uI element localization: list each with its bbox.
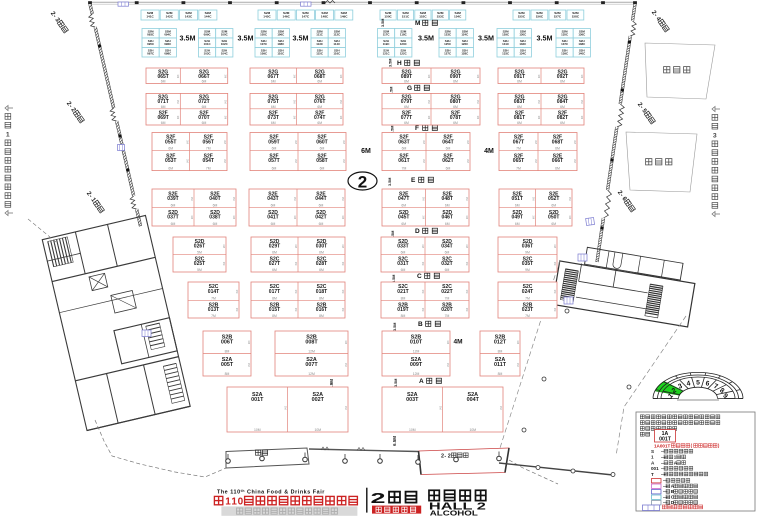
- svg-text:026T: 026T: [194, 243, 205, 249]
- svg-text:3.5M: 3.5M: [393, 323, 397, 331]
- svg-text:059T: 059T: [268, 139, 279, 145]
- svg-text:065T: 065T: [513, 158, 524, 164]
- svg-text:053T: 053T: [165, 158, 176, 164]
- svg-text:133C: 133C: [502, 51, 510, 55]
- svg-text:3M: 3M: [294, 244, 298, 248]
- svg-text:3M: 3M: [235, 308, 239, 312]
- svg-text:3M: 3M: [465, 308, 469, 312]
- svg-text:012T: 012T: [494, 340, 507, 346]
- svg-text:025T: 025T: [194, 261, 205, 267]
- svg-text:6M: 6M: [271, 121, 276, 125]
- svg-text:3M: 3M: [224, 100, 228, 104]
- svg-text:154C: 154C: [454, 14, 462, 18]
- svg-text:3M: 3M: [283, 406, 287, 410]
- svg-text:3M: 3M: [446, 340, 450, 344]
- svg-text:027T: 027T: [269, 261, 280, 267]
- svg-text:015T: 015T: [269, 307, 280, 313]
- svg-text:016T: 016T: [316, 307, 327, 313]
- svg-text:020T: 020T: [441, 307, 452, 313]
- svg-text:002T: 002T: [312, 397, 325, 403]
- svg-text:2: 2: [358, 173, 367, 192]
- svg-text:124C: 124C: [461, 32, 469, 36]
- svg-text:017T: 017T: [269, 289, 280, 295]
- svg-text:2: 2: [448, 453, 451, 459]
- svg-text:6M: 6M: [560, 80, 565, 84]
- svg-text:129C: 129C: [502, 32, 510, 36]
- svg-text:3M: 3M: [235, 290, 239, 294]
- svg-text:6M: 6M: [272, 250, 277, 254]
- svg-text:3M: 3M: [339, 100, 343, 104]
- svg-text:6M: 6M: [161, 80, 166, 84]
- svg-text:081T: 081T: [514, 115, 525, 121]
- svg-text:031T: 031T: [397, 261, 408, 267]
- svg-text:029T: 029T: [269, 243, 280, 249]
- svg-text:014T: 014T: [208, 289, 219, 295]
- svg-text:6M: 6M: [271, 222, 276, 226]
- svg-text:122C: 122C: [400, 51, 408, 55]
- svg-text:6M: 6M: [555, 147, 560, 151]
- svg-text:136C: 136C: [578, 32, 586, 36]
- svg-text:3M: 3M: [223, 159, 227, 163]
- svg-text:7M: 7M: [445, 314, 450, 318]
- svg-text:142C: 142C: [166, 14, 174, 18]
- svg-text:3.5M: 3.5M: [537, 34, 553, 43]
- svg-text:3M: 3M: [537, 100, 541, 104]
- svg-text:3M: 3M: [553, 262, 557, 266]
- svg-text:6M: 6M: [202, 80, 207, 84]
- svg-text:3M: 3M: [190, 215, 194, 219]
- svg-text:118C: 118C: [400, 32, 408, 36]
- svg-text:126C: 126C: [461, 42, 469, 46]
- svg-text:8M: 8M: [319, 314, 324, 318]
- svg-text:116C: 116C: [333, 51, 341, 55]
- svg-text:3M: 3M: [223, 140, 227, 144]
- svg-text:094C: 094C: [164, 32, 172, 36]
- svg-text:013T: 013T: [208, 307, 219, 313]
- svg-text:3.5M: 3.5M: [418, 34, 434, 43]
- svg-text:3M: 3M: [573, 140, 577, 144]
- svg-text:D: D: [415, 228, 420, 235]
- svg-text:095C: 095C: [147, 42, 155, 46]
- svg-text:3M: 3M: [438, 406, 442, 410]
- svg-text:3M: 3M: [344, 406, 348, 410]
- svg-text:6M: 6M: [453, 105, 458, 109]
- svg-text:093C: 093C: [147, 32, 155, 36]
- svg-text:068T: 068T: [552, 139, 563, 145]
- svg-text:1: 1: [651, 455, 654, 460]
- svg-text:A: A: [419, 378, 424, 385]
- svg-text:004T: 004T: [467, 397, 480, 403]
- svg-text:6M: 6M: [551, 204, 556, 208]
- svg-text:3.5M: 3.5M: [388, 178, 392, 186]
- svg-text:E: E: [411, 177, 416, 184]
- svg-text:3M: 3M: [534, 140, 538, 144]
- svg-text:150C: 150C: [384, 14, 392, 18]
- svg-text:6M: 6M: [515, 222, 520, 226]
- svg-text:125C: 125C: [444, 42, 452, 46]
- svg-text:3M: 3M: [190, 197, 194, 201]
- svg-text:3M: 3M: [224, 116, 228, 120]
- svg-text:010T: 010T: [410, 340, 423, 346]
- svg-text:066T: 066T: [552, 158, 563, 164]
- svg-text:139C: 139C: [561, 51, 569, 55]
- svg-text:6.5M: 6.5M: [392, 436, 397, 446]
- svg-text:019T: 019T: [397, 307, 408, 313]
- svg-text:3M: 3M: [176, 100, 180, 104]
- svg-text:6M: 6M: [320, 167, 325, 171]
- svg-text:3M: 3M: [421, 290, 425, 294]
- svg-text:023T: 023T: [522, 307, 533, 313]
- svg-text:B: B: [418, 321, 423, 328]
- svg-text:3M: 3M: [293, 197, 297, 201]
- svg-text:6M: 6M: [560, 105, 565, 109]
- svg-text:127C: 127C: [444, 51, 452, 55]
- svg-text:5M: 5M: [197, 268, 202, 272]
- svg-text:3M: 3M: [294, 262, 298, 266]
- svg-text:3.5M: 3.5M: [394, 379, 398, 387]
- svg-text:6M: 6M: [515, 204, 520, 208]
- svg-text:061T: 061T: [398, 158, 409, 164]
- svg-text:3M: 3M: [293, 215, 297, 219]
- svg-text:7M: 7M: [445, 296, 450, 300]
- svg-text:009T: 009T: [410, 362, 423, 368]
- svg-text:034T: 034T: [441, 243, 452, 249]
- svg-text:3M: 3M: [476, 100, 480, 104]
- svg-text:10M: 10M: [469, 428, 476, 432]
- svg-text:12M: 12M: [413, 372, 420, 376]
- svg-text:128C: 128C: [461, 51, 469, 55]
- svg-text:3M: 3M: [224, 75, 228, 79]
- svg-text:149C: 149C: [340, 14, 348, 18]
- svg-text:8M: 8M: [401, 314, 406, 318]
- svg-text:3M: 3M: [344, 363, 348, 367]
- svg-text:3M: 3M: [421, 197, 425, 201]
- svg-text:108C: 108C: [277, 42, 285, 46]
- svg-text:3M: 3M: [344, 340, 348, 344]
- svg-text:3M: 3M: [553, 290, 557, 294]
- svg-text:3M: 3M: [341, 262, 345, 266]
- svg-text:158C: 158C: [572, 14, 580, 18]
- svg-text:7M: 7M: [516, 167, 521, 171]
- svg-text:078T: 078T: [450, 115, 461, 121]
- svg-text:3M: 3M: [232, 197, 236, 201]
- svg-text:045T: 045T: [398, 215, 409, 221]
- svg-text:6M: 6M: [272, 268, 277, 272]
- svg-text:3.5M: 3.5M: [389, 59, 393, 67]
- svg-text:6M: 6M: [445, 250, 450, 254]
- svg-text:098C: 098C: [164, 51, 172, 55]
- svg-text:6M: 6M: [171, 204, 176, 208]
- svg-text:6M: 6M: [272, 147, 277, 151]
- svg-text:1: 1: [231, 496, 237, 507]
- svg-text:7M: 7M: [206, 167, 211, 171]
- svg-text:6M: 6M: [401, 250, 406, 254]
- svg-text:003T: 003T: [406, 397, 419, 403]
- svg-text:6M: 6M: [445, 204, 450, 208]
- svg-text:057T: 057T: [268, 158, 279, 164]
- svg-text:054T: 054T: [203, 158, 214, 164]
- svg-text:033T: 033T: [397, 243, 408, 249]
- svg-text:069T: 069T: [157, 115, 168, 121]
- svg-text:038T: 038T: [209, 215, 220, 221]
- svg-text:022T: 022T: [441, 289, 452, 295]
- svg-text:6M: 6M: [555, 167, 560, 171]
- svg-text:3M: 3M: [446, 363, 450, 367]
- svg-text:3M: 3M: [176, 116, 180, 120]
- svg-text:2: 2: [371, 491, 386, 507]
- svg-text:7M: 7M: [211, 296, 216, 300]
- svg-text:3M: 3M: [465, 197, 469, 201]
- svg-text:099C: 099C: [204, 32, 212, 36]
- svg-text:063T: 063T: [398, 139, 409, 145]
- svg-text:074T: 074T: [314, 115, 325, 121]
- svg-text:6M: 6M: [517, 121, 522, 125]
- svg-text:12M: 12M: [308, 372, 315, 376]
- svg-text:011T: 011T: [494, 362, 507, 368]
- svg-text:6M: 6M: [404, 105, 409, 109]
- svg-text:007T: 007T: [305, 362, 318, 368]
- svg-text:6M: 6M: [272, 167, 277, 171]
- svg-text:6M: 6M: [319, 204, 324, 208]
- svg-text:024T: 024T: [522, 289, 533, 295]
- svg-text:10M: 10M: [314, 428, 321, 432]
- svg-text:6M: 6M: [319, 268, 324, 272]
- svg-text:3M: 3M: [466, 140, 470, 144]
- svg-text:3M: 3M: [421, 308, 425, 312]
- svg-text:S: S: [651, 449, 654, 454]
- svg-text:1A001T: 1A001T: [654, 444, 671, 449]
- svg-text:131C: 131C: [502, 42, 510, 46]
- svg-text:6M: 6M: [446, 167, 451, 171]
- svg-text:3M: 3M: [247, 363, 251, 367]
- svg-text:157C: 157C: [554, 14, 562, 18]
- svg-text:H: H: [397, 60, 402, 67]
- svg-text:112C: 112C: [333, 32, 341, 36]
- svg-text:6M: 6M: [320, 147, 325, 151]
- svg-text:3M: 3M: [466, 159, 470, 163]
- svg-text:3M: 3M: [185, 159, 189, 163]
- svg-text:134C: 134C: [519, 51, 527, 55]
- svg-text:6M: 6M: [213, 204, 218, 208]
- svg-text:3M: 3M: [465, 290, 469, 294]
- svg-text:7M: 7M: [206, 147, 211, 151]
- svg-text:6M: 6M: [317, 121, 322, 125]
- svg-text:7M: 7M: [211, 314, 216, 318]
- svg-text:The 110th China Food & Drinks: The 110th China Food & Drinks Fair: [217, 489, 325, 496]
- svg-text:035T: 035T: [522, 261, 533, 267]
- svg-text:107C: 107C: [260, 42, 268, 46]
- svg-text:111C: 111C: [316, 32, 324, 36]
- svg-text:6M: 6M: [168, 147, 173, 151]
- svg-text:3M: 3M: [580, 75, 584, 79]
- svg-text:106C: 106C: [277, 32, 285, 36]
- svg-text:12M: 12M: [413, 349, 420, 353]
- svg-text:3M: 3M: [292, 100, 296, 104]
- svg-text:100C: 100C: [221, 32, 229, 36]
- svg-text:3M: 3M: [580, 100, 584, 104]
- svg-text:6M: 6M: [161, 105, 166, 109]
- svg-text:103C: 103C: [204, 51, 212, 55]
- svg-text:101C: 101C: [204, 42, 212, 46]
- svg-text:3M: 3M: [421, 262, 425, 266]
- svg-text:5: 5: [696, 380, 700, 387]
- svg-text:4M: 4M: [484, 148, 494, 155]
- svg-text:3M: 3M: [573, 159, 577, 163]
- svg-text:6M: 6M: [202, 105, 207, 109]
- svg-text:0: 0: [238, 496, 244, 507]
- svg-text:6M: 6M: [404, 121, 409, 125]
- svg-text:3M: 3M: [537, 75, 541, 79]
- svg-text:130C: 130C: [519, 32, 527, 36]
- svg-text:3M: 3M: [534, 159, 538, 163]
- svg-text:143C: 143C: [185, 14, 193, 18]
- svg-text:3.5M: 3.5M: [478, 34, 494, 43]
- svg-text:8M: 8M: [225, 349, 230, 353]
- svg-text:102C: 102C: [221, 42, 229, 46]
- svg-text:8M: 8M: [272, 314, 277, 318]
- svg-text:6M: 6M: [445, 222, 450, 226]
- svg-text:3M: 3M: [222, 244, 226, 248]
- svg-text:113C: 113C: [316, 42, 324, 46]
- svg-text:6M: 6M: [171, 222, 176, 226]
- svg-text:ALCOHOL: ALCOHOL: [430, 509, 479, 516]
- svg-text:110C: 110C: [277, 51, 285, 55]
- svg-text:3M: 3M: [294, 140, 298, 144]
- svg-text:3M: 3M: [427, 75, 431, 79]
- svg-text:3M: 3M: [516, 363, 520, 367]
- svg-text:3M: 3M: [422, 159, 426, 163]
- svg-text:049T: 049T: [512, 215, 523, 221]
- svg-text:3M: 3M: [342, 159, 346, 163]
- svg-text:064T: 064T: [442, 139, 453, 145]
- svg-text:109C: 109C: [260, 51, 268, 55]
- svg-text:120C: 120C: [400, 42, 408, 46]
- svg-text:6M: 6M: [168, 167, 173, 171]
- svg-text:3M: 3M: [568, 197, 572, 201]
- svg-text:3M: 3M: [339, 116, 343, 120]
- svg-text:6M: 6M: [404, 80, 409, 84]
- svg-text:039T: 039T: [167, 196, 178, 202]
- svg-text:156C: 156C: [536, 14, 544, 18]
- svg-text:008T: 008T: [305, 340, 318, 346]
- svg-text:3: 3: [713, 132, 717, 139]
- svg-text:060T: 060T: [316, 139, 327, 145]
- svg-text:6M: 6M: [453, 121, 458, 125]
- svg-text:6M: 6M: [401, 204, 406, 208]
- svg-text:055T: 055T: [165, 139, 176, 145]
- svg-text:8M: 8M: [319, 296, 324, 300]
- svg-text:10M: 10M: [409, 428, 416, 432]
- svg-text:3M: 3M: [499, 406, 503, 410]
- svg-text:8M: 8M: [498, 349, 503, 353]
- svg-text:3M: 3M: [292, 116, 296, 120]
- svg-text:6M: 6M: [551, 222, 556, 226]
- svg-text:3M: 3M: [292, 75, 296, 79]
- svg-text:050T: 050T: [548, 215, 559, 221]
- svg-text:040T: 040T: [209, 196, 220, 202]
- svg-text:140C: 140C: [578, 51, 586, 55]
- svg-text:G: G: [407, 85, 412, 92]
- svg-text:8M: 8M: [498, 372, 503, 376]
- svg-text:046T: 046T: [442, 215, 453, 221]
- svg-text:070T: 070T: [198, 115, 209, 121]
- svg-text:006T: 006T: [221, 340, 234, 346]
- svg-text:7M: 7M: [402, 167, 407, 171]
- svg-text:001T: 001T: [251, 397, 264, 403]
- svg-text:3M: 3M: [342, 140, 346, 144]
- svg-text:115C: 115C: [316, 51, 324, 55]
- svg-text:096C: 096C: [164, 42, 172, 46]
- svg-text:9M: 9M: [525, 268, 530, 272]
- svg-text:7M: 7M: [516, 147, 521, 151]
- svg-text:001: 001: [651, 466, 659, 471]
- svg-text:3M: 3M: [222, 262, 226, 266]
- svg-text:3M: 3M: [341, 197, 345, 201]
- svg-text:3M: 3M: [421, 215, 425, 219]
- svg-text:6M: 6M: [271, 105, 276, 109]
- svg-text:073T: 073T: [268, 115, 279, 121]
- svg-text:4M: 4M: [453, 339, 462, 346]
- svg-text:8M: 8M: [272, 296, 277, 300]
- svg-text:119C: 119C: [383, 42, 391, 46]
- svg-text:5M: 5M: [197, 250, 202, 254]
- svg-text:077T: 077T: [401, 115, 412, 121]
- svg-text:3M: 3M: [294, 308, 298, 312]
- svg-text:097C: 097C: [147, 51, 155, 55]
- svg-text:1: 1: [6, 131, 10, 138]
- svg-text:3.5M: 3.5M: [238, 34, 254, 43]
- svg-text:048T: 048T: [442, 196, 453, 202]
- svg-text:123C: 123C: [444, 32, 452, 36]
- svg-text:105C: 105C: [260, 32, 268, 36]
- svg-text:3M: 3M: [537, 116, 541, 120]
- svg-text:3M: 3M: [294, 290, 298, 294]
- svg-text:6M: 6M: [517, 80, 522, 84]
- svg-text:114C: 114C: [333, 42, 341, 46]
- svg-text:10M: 10M: [254, 428, 261, 432]
- svg-text:3M: 3M: [294, 159, 298, 163]
- svg-text:104C: 104C: [221, 51, 229, 55]
- svg-text:3M: 3M: [427, 116, 431, 120]
- svg-text:137C: 137C: [561, 42, 569, 46]
- svg-text:3M: 3M: [580, 116, 584, 120]
- svg-text:3M: 3M: [465, 244, 469, 248]
- svg-text:3.5M: 3.5M: [180, 34, 196, 43]
- svg-text:8M: 8M: [401, 296, 406, 300]
- svg-text:032T: 032T: [441, 261, 452, 267]
- svg-text:005T: 005T: [221, 362, 234, 368]
- svg-text:121C: 121C: [383, 51, 391, 55]
- svg-text:6M: 6M: [271, 80, 276, 84]
- svg-text:6M: 6M: [161, 121, 166, 125]
- svg-text:117C: 117C: [383, 32, 391, 36]
- svg-text:6M: 6M: [453, 80, 458, 84]
- svg-text:3M: 3M: [427, 100, 431, 104]
- svg-text:3M: 3M: [553, 244, 557, 248]
- svg-text:6M: 6M: [401, 268, 406, 272]
- svg-text:3M: 3M: [341, 244, 345, 248]
- svg-text:9M: 9M: [525, 250, 530, 254]
- svg-text:147C: 147C: [302, 14, 310, 18]
- svg-text:151C: 151C: [402, 14, 410, 18]
- svg-text:3M: 3M: [341, 215, 345, 219]
- svg-text:145C: 145C: [263, 14, 271, 18]
- svg-text:028T: 028T: [316, 261, 327, 267]
- svg-text:056T: 056T: [203, 139, 214, 145]
- svg-text:042T: 042T: [315, 215, 326, 221]
- svg-text:6M: 6M: [445, 268, 450, 272]
- svg-text:C: C: [417, 273, 422, 280]
